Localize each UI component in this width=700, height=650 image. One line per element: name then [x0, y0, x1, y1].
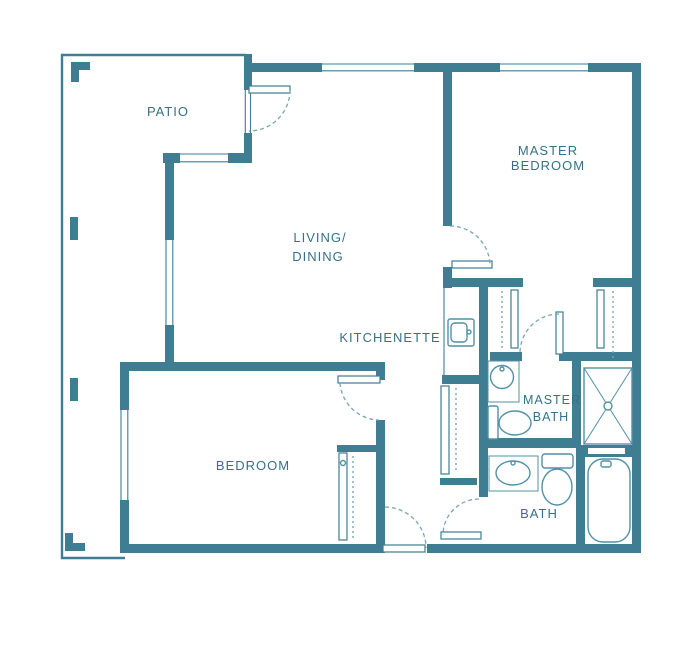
patio-edge-line — [62, 55, 246, 558]
master-bath-door — [520, 312, 563, 354]
closet-door-panel — [441, 386, 449, 474]
door-leaf — [452, 261, 492, 268]
master-bedroom-door — [450, 226, 492, 268]
entry-door — [383, 507, 426, 552]
room-label-master-bath-line2: BATH — [533, 410, 569, 424]
bedroom-door — [338, 376, 380, 420]
door-swing-arc — [520, 314, 559, 353]
floor-plan-svg: PATIO LIVING/ DINING MASTER BEDROOM KITC… — [0, 0, 700, 650]
wall-segment — [120, 362, 129, 410]
room-label-master-bath-line1: MASTER — [523, 393, 581, 407]
closet-door-panel — [597, 290, 604, 348]
master-bath-toilet-icon — [488, 406, 531, 439]
bedroom-window — [120, 410, 129, 500]
master-closet-right — [597, 290, 613, 358]
bathtub-icon — [588, 459, 630, 542]
door-swing-arc — [340, 383, 379, 420]
closet-door-panel — [511, 290, 518, 348]
floor-plan-page: PATIO LIVING/ DINING MASTER BEDROOM KITC… — [0, 0, 700, 650]
shower-icon — [584, 368, 632, 444]
room-label-master-bedroom-line2: BEDROOM — [511, 158, 585, 173]
wall-segment — [593, 278, 641, 287]
closet-knob — [341, 461, 346, 466]
door-swing-arc — [249, 90, 290, 131]
door-leaf — [556, 312, 563, 354]
wall-segment — [490, 352, 522, 361]
patio-door — [245, 86, 290, 133]
wall-segment — [440, 478, 477, 485]
door-swing-arc — [385, 507, 426, 548]
wall-segment — [448, 63, 500, 72]
wall-segment — [427, 544, 641, 553]
master-closet-left — [502, 290, 518, 348]
door-leaf — [441, 532, 481, 539]
wall-segment — [559, 352, 641, 361]
patio-corner-post — [71, 62, 90, 82]
room-label-kitchenette: KITCHENETTE — [339, 330, 440, 345]
room-label-master-bedroom-line1: MASTER — [518, 143, 578, 158]
wall-segment — [376, 420, 385, 553]
living-side-window — [165, 240, 174, 325]
patio-outline — [62, 55, 246, 558]
wall-segment — [120, 544, 382, 553]
wall-segment — [244, 54, 252, 90]
patio-post — [70, 378, 78, 401]
patio-corner-post — [65, 533, 85, 551]
wall-segment — [120, 500, 129, 553]
bath-door — [441, 499, 481, 539]
master-bedroom-window — [500, 63, 588, 72]
wall-segment — [632, 63, 641, 553]
door-leaf — [383, 545, 425, 552]
wall-segment — [443, 278, 523, 287]
hall-linen-closet — [441, 386, 456, 474]
kitchen-sink-icon — [448, 319, 474, 346]
door-swing-arc — [450, 226, 490, 266]
wall-segment — [120, 362, 385, 371]
bedroom-closet — [339, 453, 353, 540]
wall-segment — [165, 153, 174, 240]
wall-segment — [443, 63, 452, 226]
living-window — [322, 63, 414, 72]
door-swing-arc — [443, 499, 479, 535]
patio-post — [70, 217, 78, 240]
bath-toilet-icon — [542, 454, 573, 505]
room-label-living-line1: LIVING/ — [293, 230, 346, 245]
wall-segment — [414, 63, 448, 72]
wall-segment — [337, 445, 376, 452]
master-bath-sink-icon — [488, 361, 519, 402]
wall-segment — [244, 63, 322, 72]
wall-segment — [479, 287, 488, 384]
wall-segment — [576, 448, 585, 544]
room-label-living-line2: DINING — [292, 249, 344, 264]
door-leaf — [249, 86, 290, 93]
wall-segment — [228, 153, 252, 163]
door-frame — [245, 90, 250, 133]
bath-sink-icon — [489, 456, 538, 491]
wall-segment — [442, 375, 490, 384]
room-label-bedroom: BEDROOM — [216, 458, 290, 473]
tub-niche — [588, 448, 625, 454]
door-leaf — [338, 376, 380, 383]
room-label-bath: BATH — [520, 506, 558, 521]
room-label-patio: PATIO — [147, 104, 189, 119]
patio-wall-window — [180, 153, 228, 163]
